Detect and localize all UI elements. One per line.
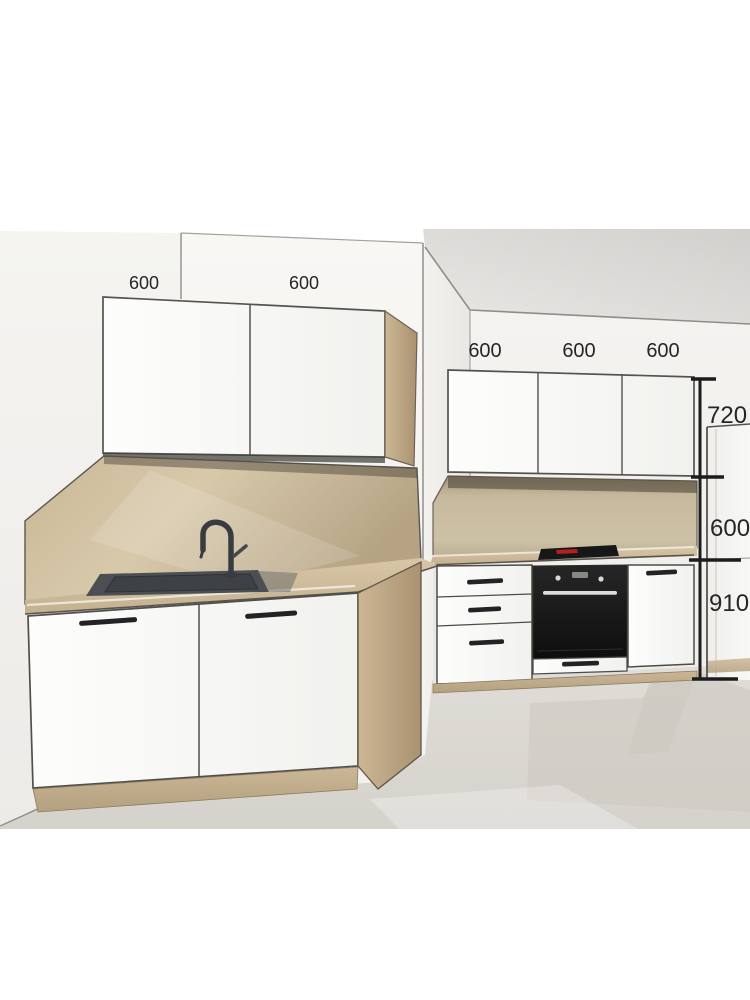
dim-backsplash-gap: 600 — [710, 515, 750, 542]
tall-cabinet-front — [707, 424, 750, 680]
right-upper-cabinets — [448, 370, 694, 476]
bottom-margin-band — [0, 829, 750, 1000]
dim-left-cabinet-1: 600 — [129, 273, 159, 293]
left-upper-end-panel — [385, 311, 417, 466]
dim-back-cabinet-3: 600 — [646, 340, 679, 362]
dim-back-cabinet-1: 600 — [468, 340, 501, 362]
dim-back-cabinet-2: 600 — [562, 340, 595, 362]
tall-cabinet — [707, 424, 750, 680]
dim-wall-cabinet-height: 720 — [707, 402, 747, 429]
kitchen-3d-preview: 600 600 600 600 600 720 600 910 — [0, 0, 750, 1000]
oven-knob-right — [598, 576, 603, 581]
top-margin-band — [0, 0, 750, 229]
dim-left-cabinet-2: 600 — [289, 273, 319, 293]
dim-base-height: 910 — [709, 590, 749, 617]
back-wall-kitchen-run — [430, 370, 697, 693]
left-base-end-panel — [358, 562, 421, 789]
faucet-base — [224, 572, 238, 578]
oven-knob-left — [555, 575, 560, 580]
built-in-oven — [533, 565, 627, 659]
oven-handle — [543, 591, 617, 595]
left-upper-cabinets — [103, 297, 385, 457]
kitchen-render-canvas: 600 600 600 600 600 720 600 910 — [0, 0, 750, 1000]
faucet-spout — [201, 550, 203, 557]
right-base-door — [628, 565, 694, 667]
left-base-cabinets — [28, 593, 358, 788]
oven-display — [572, 572, 588, 578]
